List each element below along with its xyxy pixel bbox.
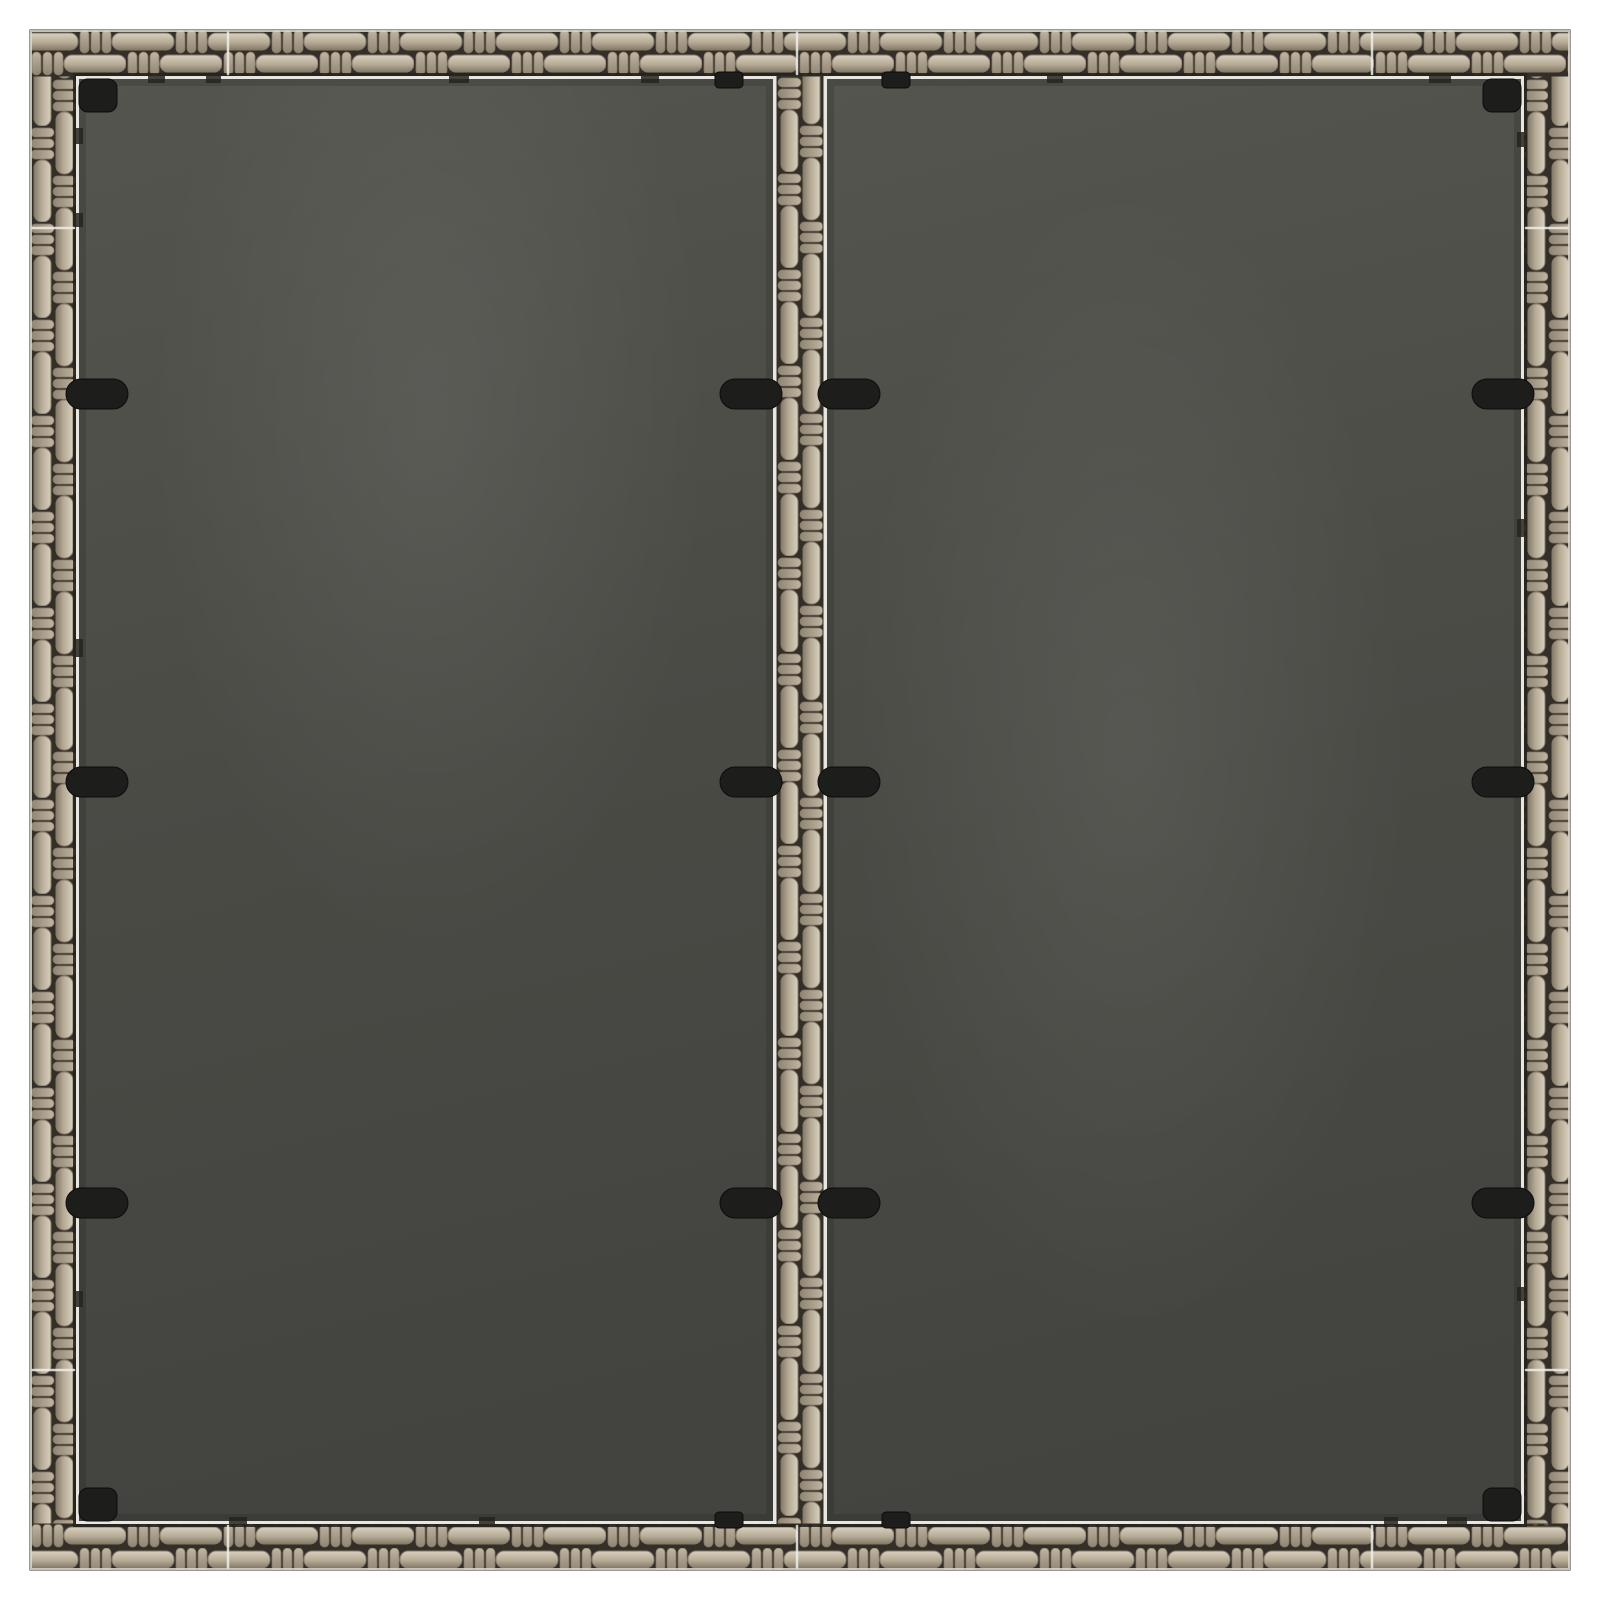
center-divider bbox=[773, 76, 827, 1524]
glass-clip-right-middle bbox=[1472, 767, 1534, 797]
corner-bracket-top-right bbox=[1483, 79, 1521, 112]
edge-tab-bottom-right bbox=[882, 1512, 910, 1528]
glass-clip-left-bottom bbox=[66, 1188, 128, 1218]
divider-gap-left bbox=[773, 79, 777, 1521]
divider-clip-left-top bbox=[720, 379, 782, 409]
frame-band-left bbox=[30, 30, 76, 1570]
divider-clip-left-bottom bbox=[720, 1188, 782, 1218]
frame-band-right bbox=[1524, 30, 1570, 1570]
product-photo: Top-down view of a square grey poly ratt… bbox=[0, 0, 1600, 1600]
glass-clip-right-top bbox=[1472, 379, 1534, 409]
glass-reflection-right bbox=[850, 180, 1410, 1340]
corner-bracket-top-left bbox=[79, 79, 117, 112]
glass-clip-right-bottom bbox=[1472, 1188, 1534, 1218]
edge-tab-bottom-left bbox=[715, 1512, 743, 1528]
rattan-table-top-photo bbox=[0, 0, 1600, 1600]
edge-tab-top-left bbox=[715, 72, 743, 88]
glass-clip-left-top bbox=[66, 379, 128, 409]
edge-tab-top-right bbox=[882, 72, 910, 88]
corner-bracket-bottom-left bbox=[79, 1488, 117, 1521]
glass-clip-left-middle bbox=[66, 767, 128, 797]
divider-clip-right-top bbox=[818, 379, 880, 409]
divider-strip bbox=[777, 76, 823, 1524]
frame-band-bottom bbox=[30, 1524, 1570, 1570]
divider-clip-left-middle bbox=[720, 767, 782, 797]
frame-band-top bbox=[30, 30, 1570, 76]
corner-bracket-bottom-right bbox=[1483, 1488, 1521, 1521]
divider-clip-right-middle bbox=[818, 767, 880, 797]
divider-clip-right-bottom bbox=[818, 1188, 880, 1218]
divider-gap-right bbox=[823, 79, 827, 1521]
